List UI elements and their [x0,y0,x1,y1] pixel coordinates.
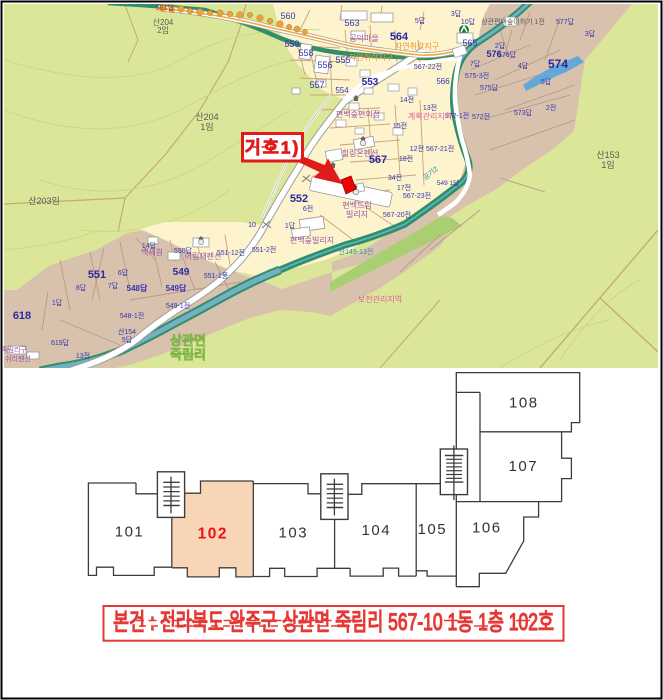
svg-text:552: 552 [290,193,308,205]
svg-text:563: 563 [344,18,359,28]
svg-text:8답: 8답 [76,283,87,292]
svg-text:자연취락지구: 자연취락지구 [395,41,439,51]
svg-text:567-20전: 567-20전 [383,210,411,219]
svg-text:산204: 산204 [195,112,218,122]
svg-text:104: 104 [362,522,392,539]
svg-text:본건 : 전라북도 완주군 상관면 죽림리 567-10 1: 본건 : 전라북도 완주군 상관면 죽림리 567-10 1동 1층 102호 [113,610,554,636]
svg-text:산203임: 산203임 [28,195,60,206]
svg-text:554: 554 [335,86,349,95]
svg-text:549: 549 [173,267,190,278]
svg-text:557: 557 [309,80,324,90]
svg-text:102: 102 [198,526,228,543]
svg-text:1임: 1임 [601,159,614,170]
svg-text:549 1답: 549 1답 [437,179,459,187]
svg-text:편백숲편의점: 편백숲편의점 [336,109,380,119]
svg-text:죽림리구: 죽림리구 [1,345,27,354]
svg-text:5답: 5답 [415,16,426,25]
svg-text:575-3전: 575-3전 [465,71,489,80]
svg-text:2답: 2답 [495,41,506,50]
svg-text:573답: 573답 [514,108,533,117]
svg-text:106: 106 [472,520,502,537]
svg-text:편백숲빌리지: 편백숲빌리지 [290,235,334,245]
svg-text:10답: 10답 [461,17,476,26]
svg-text:3답: 3답 [451,9,462,18]
svg-text:551-1풍: 551-1풍 [204,272,229,280]
svg-text:1임: 1임 [200,121,213,132]
svg-text:10: 10 [248,222,256,229]
svg-text:산149-13전: 산149-13전 [339,247,374,256]
svg-text:553: 553 [362,77,379,88]
svg-text:편백드림: 편백드림 [342,200,371,210]
svg-text:상관편백숲이허기 1전: 상관편백숲이허기 1전 [481,17,545,26]
svg-text:107: 107 [509,458,539,475]
svg-text:7답: 7답 [108,281,119,290]
svg-text:17전: 17전 [397,183,411,192]
svg-text:108: 108 [509,395,539,412]
svg-text:103: 103 [279,525,309,542]
svg-text:34전: 34전 [388,173,402,182]
svg-text:어림재펜션: 어림재펜션 [185,251,222,261]
svg-text:쉬리펜션: 쉬리펜션 [5,354,31,363]
svg-text:빌리지: 빌리지 [346,209,368,219]
svg-text:산153: 산153 [596,150,619,160]
svg-text:1답: 1답 [52,298,63,307]
svg-text:계획관리지역: 계획관리지역 [408,111,452,121]
svg-text:565: 565 [462,38,477,48]
svg-text:574: 574 [548,57,568,71]
svg-text:공덕마을: 공덕마을 [349,33,378,43]
svg-text:13전: 13전 [76,351,90,360]
svg-text:548-1전: 548-1전 [120,311,144,320]
svg-text:1답: 1답 [285,221,296,230]
svg-text:12전 567-21전: 12전 567-21전 [410,144,454,153]
svg-text:자연취락지구: 자연취락지구 [349,52,393,62]
svg-text:559: 559 [284,39,299,49]
svg-text:567-23전: 567-23전 [403,191,431,200]
svg-text:551: 551 [88,269,106,281]
svg-text:618: 618 [13,310,31,322]
svg-text:18전: 18전 [399,154,413,163]
svg-text:549-1전: 549-1전 [166,301,190,310]
svg-text:575답: 575답 [480,83,499,92]
svg-text:576답: 576답 [498,50,517,59]
svg-text:549답: 549답 [166,283,187,293]
svg-text:105: 105 [418,521,448,538]
svg-text:566: 566 [436,77,450,86]
svg-text:5답: 5답 [541,77,552,86]
svg-text:619답: 619답 [51,338,70,347]
svg-text:572전: 572전 [472,112,490,121]
svg-text:산154: 산154 [118,327,136,336]
svg-text:백세원: 백세원 [141,247,163,257]
svg-text:보전관리지역: 보전관리지역 [358,294,402,304]
svg-text:4답: 4답 [518,61,529,70]
svg-text:14전: 14전 [400,95,414,104]
svg-text:힐링온펜션: 힐링온펜션 [342,148,379,158]
svg-text:561답: 561답 [156,3,175,12]
svg-text:15전: 15전 [393,121,407,130]
svg-text:551-2전: 551-2전 [252,245,276,254]
svg-text:2전: 2전 [546,103,556,112]
svg-text:13전: 13전 [423,103,437,112]
svg-text:2임: 2임 [157,26,169,35]
svg-text:101: 101 [115,524,145,541]
svg-text:3답: 3답 [585,29,596,38]
svg-text:6전: 6전 [303,204,313,213]
svg-text:560: 560 [280,11,295,21]
svg-text:6답: 6답 [118,268,129,277]
svg-text:5답: 5답 [122,335,133,344]
svg-text:7답: 7답 [470,59,481,68]
svg-text:558: 558 [298,48,313,58]
svg-text:567-22전: 567-22전 [414,62,442,71]
svg-text:577답: 577답 [556,17,575,26]
svg-text:548답: 548답 [127,283,148,293]
svg-text:556: 556 [317,60,332,70]
